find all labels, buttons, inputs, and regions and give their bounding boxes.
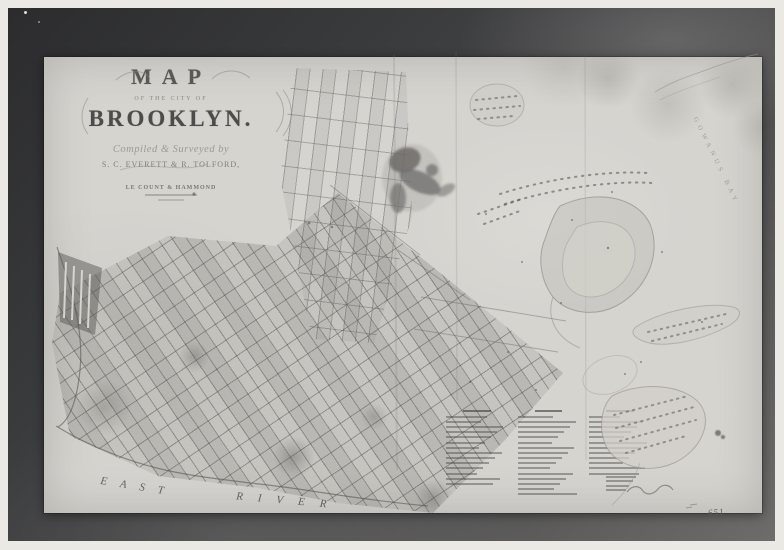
waterfront-piers bbox=[58, 252, 102, 335]
dark-stain bbox=[715, 430, 725, 439]
cartouche-flourishes bbox=[82, 71, 291, 170]
long-marsh-island bbox=[633, 305, 740, 344]
small-marsh-island bbox=[470, 84, 524, 126]
pencil-scribble bbox=[627, 485, 697, 508]
upper-coastline bbox=[655, 54, 758, 100]
map-engraving-linework bbox=[0, 0, 784, 550]
gowanus-creek bbox=[541, 197, 654, 402]
east-river-shoreline bbox=[56, 247, 428, 506]
photograph-of-brooklyn-map: { "photo": { "title_cartouche": { "map_w… bbox=[0, 0, 784, 550]
dark-inlet-blob bbox=[382, 143, 457, 213]
avenue-lines bbox=[330, 185, 566, 352]
large-marsh-island bbox=[602, 387, 706, 505]
